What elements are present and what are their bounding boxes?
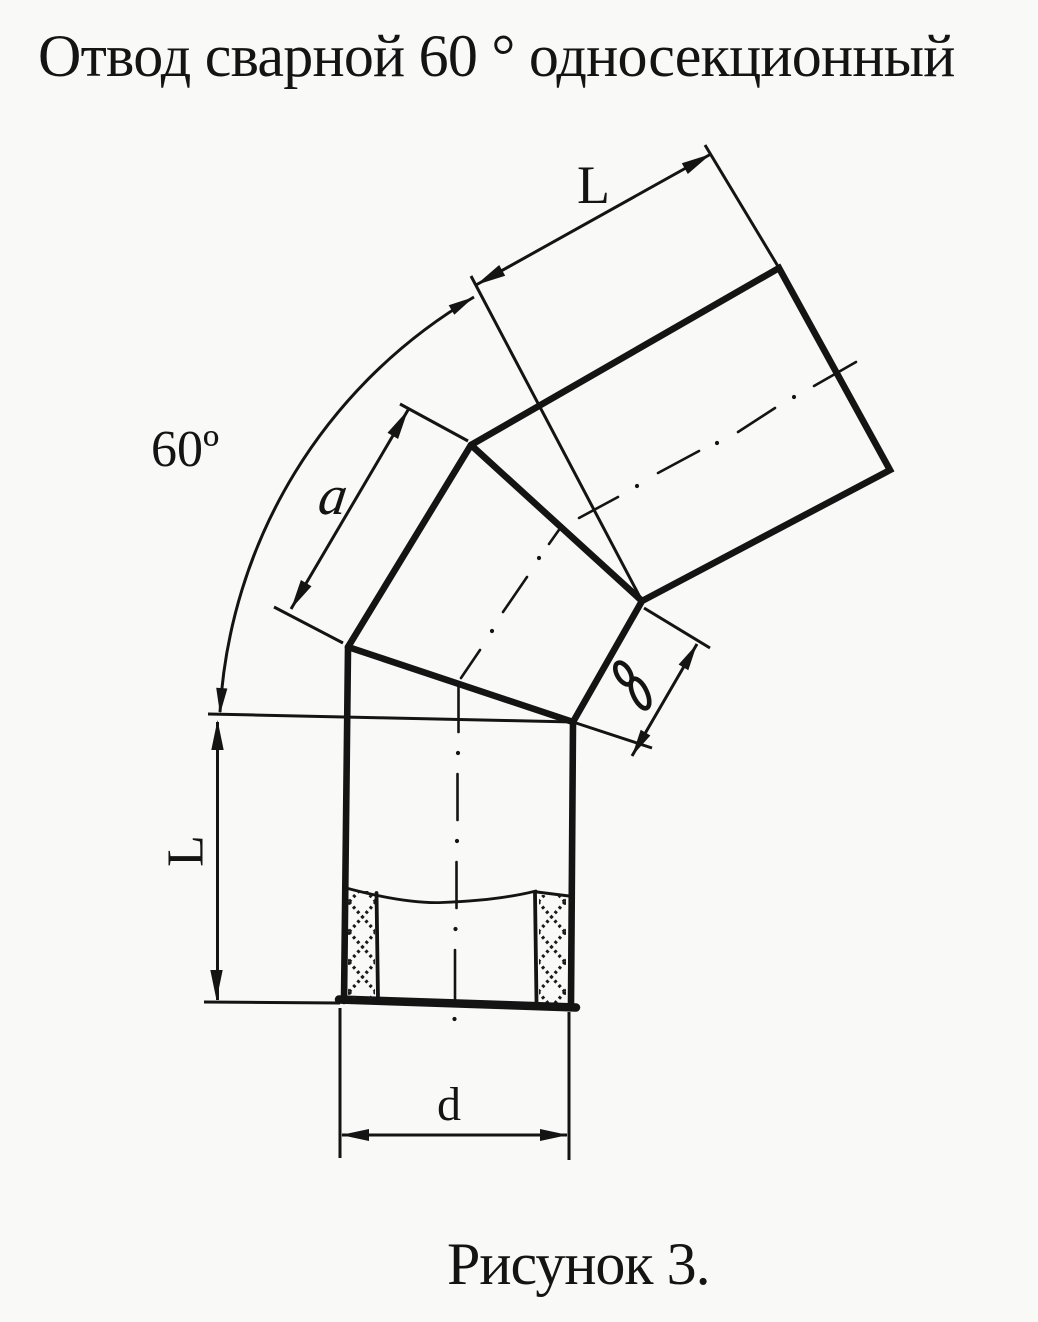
svg-text:60º: 60º bbox=[151, 421, 219, 478]
svg-text:Отвод сварной 60 ° односекцион: Отвод сварной 60 ° односекционный bbox=[38, 23, 955, 89]
svg-text:d: d bbox=[437, 1078, 461, 1131]
svg-text:L: L bbox=[158, 835, 215, 867]
svg-text:L: L bbox=[577, 155, 610, 215]
svg-text:Рисунок 3.: Рисунок 3. bbox=[447, 1231, 710, 1297]
